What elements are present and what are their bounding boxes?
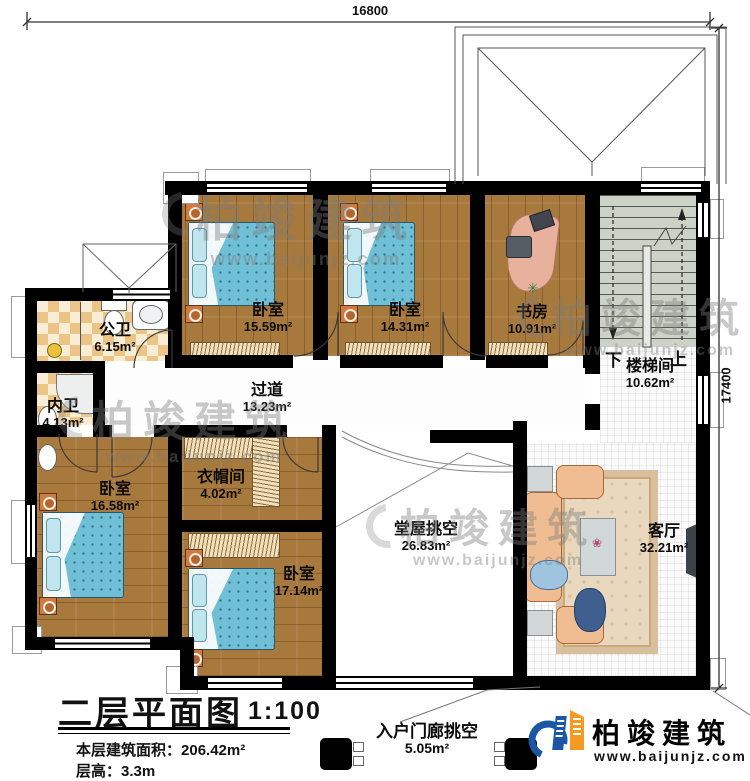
sink-basin	[139, 305, 163, 324]
column-bracket	[353, 756, 364, 766]
room-area: 15.59m²	[244, 320, 292, 335]
room-label-hall-void: 堂屋挑空 26.83m²	[394, 521, 458, 553]
drawing-scale: 1:100	[248, 697, 322, 726]
side-table	[527, 466, 553, 492]
person-sitting	[574, 588, 606, 632]
person-sitting	[530, 560, 568, 590]
porch-roof-outline	[455, 27, 726, 184]
brand-logo-icon	[524, 704, 588, 768]
window	[641, 182, 701, 194]
room-label-public-bath: 公卫 6.15m²	[94, 322, 135, 354]
window	[207, 182, 307, 194]
floor-plan: ✳ ❀	[0, 0, 750, 781]
nightstand	[39, 597, 57, 615]
room-label-bedroom-nw: 卧室 15.59m²	[244, 302, 292, 334]
column-bracket	[353, 742, 364, 752]
wall	[513, 421, 527, 676]
nightstand	[185, 203, 203, 221]
room-area: 4.13m²	[42, 416, 83, 431]
floor-drain	[47, 343, 62, 358]
brand-name: 柏竣建筑	[592, 712, 732, 752]
wall	[486, 355, 548, 368]
floor-height-line: 层高：3.3m	[76, 760, 155, 781]
bay-roof-outline	[83, 244, 176, 293]
window	[113, 288, 170, 301]
room-name: 衣帽间	[197, 469, 245, 487]
bath-partition	[80, 302, 81, 360]
window	[336, 676, 473, 690]
stair-up-label: 上	[670, 345, 687, 370]
room-label-corridor: 过道 13.23m²	[243, 382, 291, 414]
column-bracket	[494, 756, 505, 766]
room-name: 卧室	[91, 481, 139, 499]
dim-right: 17400	[719, 367, 734, 403]
room-name: 堂屋挑空	[394, 521, 458, 539]
wall	[180, 520, 322, 532]
room-name: 书房	[508, 304, 556, 322]
wall	[696, 181, 710, 690]
room-area: 32.21m²	[640, 541, 688, 556]
nightstand	[39, 493, 57, 511]
room-area: 26.83m²	[394, 539, 458, 554]
side-table	[527, 610, 553, 636]
pillow	[192, 228, 207, 262]
wall	[340, 355, 443, 368]
wall	[585, 404, 600, 430]
room-name: 过道	[243, 382, 291, 400]
room-label-study: 书房 10.91m²	[508, 304, 556, 336]
porch-label: 入户门廊挑空 5.05m²	[376, 722, 478, 757]
room-area: 10.62m²	[626, 376, 674, 391]
armchair	[556, 465, 604, 499]
wall	[97, 425, 112, 437]
window	[25, 505, 37, 557]
wall	[165, 355, 293, 368]
porch-area: 5.05m²	[376, 741, 478, 757]
logo-buildings	[552, 716, 567, 750]
room-name: 卧室	[244, 302, 292, 320]
floor-area-line: 本层建筑面积：206.42m²	[76, 739, 245, 760]
room-area: 13.23m²	[243, 400, 291, 415]
room-area: 16.58m²	[91, 499, 139, 514]
column	[320, 738, 352, 770]
nightstand	[340, 305, 358, 323]
pillow	[192, 574, 207, 607]
nightstand	[340, 203, 358, 221]
room-name: 楼梯间	[626, 358, 674, 376]
room-label-ensuite-bath: 内卫 4.13m²	[42, 398, 83, 430]
room-area: 17.14m²	[275, 584, 323, 599]
window	[372, 182, 446, 194]
window	[696, 376, 710, 424]
desk-chair	[506, 236, 532, 258]
window	[55, 637, 150, 650]
wall	[168, 181, 182, 368]
room-label-bedroom-n: 卧室 14.31m²	[381, 302, 429, 334]
pillow	[192, 609, 207, 642]
room-area: 6.15m²	[94, 340, 135, 355]
wall	[430, 430, 513, 443]
brand-website: www.baijunjz.com	[594, 748, 747, 764]
room-name: 卧室	[381, 302, 429, 320]
room-area: 4.02m²	[197, 487, 245, 502]
wall	[192, 425, 287, 437]
wardrobe	[184, 437, 256, 459]
pillow	[192, 264, 207, 298]
wall	[470, 194, 485, 360]
floor-corridor	[105, 368, 585, 425]
room-area: 10.91m²	[508, 322, 556, 337]
pillow	[347, 264, 362, 298]
wall	[322, 425, 336, 676]
window	[696, 203, 710, 237]
pillow	[46, 518, 61, 553]
floor-height-label: 层高：	[76, 763, 121, 780]
wall	[583, 355, 600, 368]
pillow	[347, 228, 362, 262]
toilet-bowl	[38, 444, 57, 471]
nightstand	[185, 549, 203, 567]
floor-void	[336, 437, 513, 676]
room-label-bedroom-sw: 卧室 16.58m²	[91, 481, 139, 513]
floor-area-label: 本层建筑面积：	[76, 742, 181, 759]
floor-height-value: 3.3m	[121, 763, 155, 780]
room-label-stairwell: 楼梯间 10.62m²	[626, 358, 674, 390]
wall	[168, 425, 182, 637]
table-flowers: ❀	[592, 536, 602, 550]
column-bracket	[494, 742, 505, 752]
porch-name: 入户门廊挑空	[376, 722, 478, 741]
stair-treads	[600, 195, 696, 347]
room-name: 内卫	[42, 398, 83, 416]
room-name: 客厅	[640, 523, 688, 541]
floor-area-value: 206.42m²	[181, 742, 245, 759]
room-label-bedroom-s: 卧室 17.14m²	[275, 566, 323, 598]
plant: ✳	[527, 280, 539, 297]
wall	[313, 194, 328, 360]
wall	[585, 194, 600, 374]
title-underline	[58, 727, 290, 734]
room-label-cloakroom: 衣帽间 4.02m²	[197, 469, 245, 501]
wall	[25, 288, 37, 650]
room-area: 14.31m²	[381, 320, 429, 335]
room-name: 卧室	[275, 566, 323, 584]
wall	[25, 361, 105, 373]
wardrobe	[252, 437, 280, 507]
nightstand	[185, 305, 203, 323]
pillow	[46, 556, 61, 591]
room-name: 公卫	[94, 322, 135, 340]
dim-top: 16800	[352, 3, 388, 18]
stair-down-label: 下	[605, 346, 622, 371]
window-sill	[710, 658, 726, 690]
room-label-living: 客厅 32.21m²	[640, 523, 688, 555]
window-sill	[710, 199, 724, 239]
